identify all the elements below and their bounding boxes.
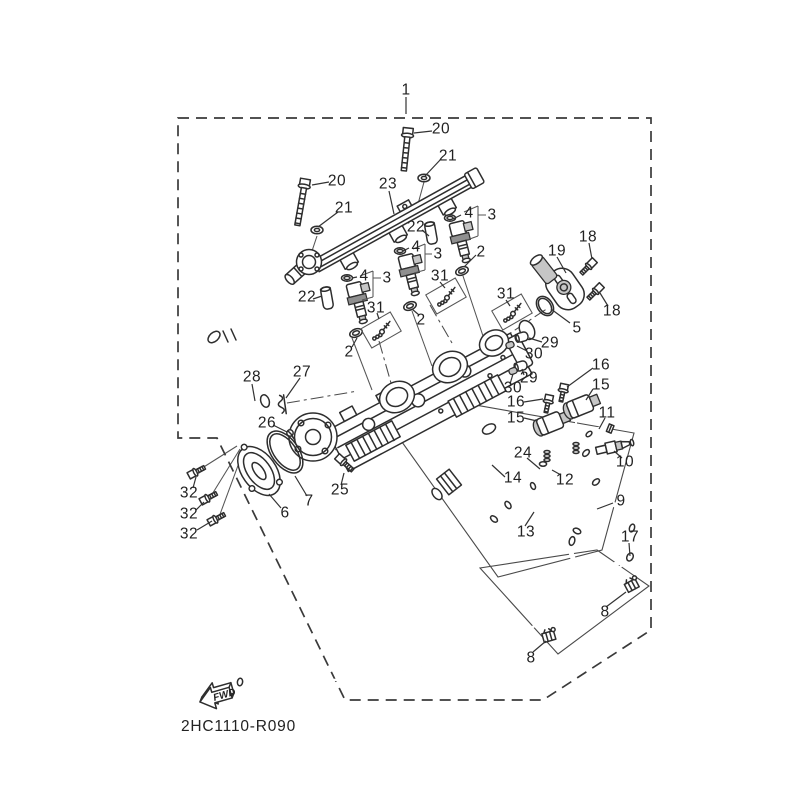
part-label-30[interactable]: 30 (525, 346, 543, 363)
leader-line (269, 494, 281, 508)
leader-line (389, 191, 394, 214)
part-label-21[interactable]: 21 (335, 200, 353, 217)
part-label-14[interactable]: 14 (504, 470, 522, 487)
cap-29a (514, 331, 529, 343)
part-label-18[interactable]: 18 (579, 229, 597, 246)
leader-line (551, 309, 570, 323)
washer-21-right (418, 174, 430, 182)
part-label-31[interactable]: 31 (367, 300, 385, 317)
part-label-22[interactable]: 22 (298, 289, 316, 306)
hose-clamp-27 (277, 395, 286, 415)
part-label-27[interactable]: 27 (293, 364, 311, 381)
part-label-2[interactable]: 2 (476, 244, 485, 261)
exploded-parts-diagram: FWD 2HC1110-R090 12021202321432243219184… (0, 0, 800, 800)
part-label-21[interactable]: 21 (439, 148, 457, 165)
leader-line (597, 503, 613, 509)
part-label-25[interactable]: 25 (331, 482, 349, 499)
part-label-32[interactable]: 32 (180, 485, 198, 502)
part-label-20[interactable]: 20 (328, 173, 346, 190)
drawing-code: 2HC1110-R090 (181, 718, 296, 735)
part-label-22[interactable]: 22 (407, 219, 425, 236)
part-label-3[interactable]: 3 (433, 246, 442, 263)
bolt-16a (541, 394, 555, 414)
part-label-23[interactable]: 23 (379, 176, 397, 193)
part-label-16[interactable]: 16 (592, 357, 610, 374)
part-label-8[interactable]: 8 (526, 650, 535, 667)
part-label-29[interactable]: 29 (520, 370, 538, 387)
part-label-28[interactable]: 28 (243, 369, 261, 386)
parts-diagram-page: FWD 2HC1110-R090 12021202321432243219184… (0, 0, 800, 800)
fwd-arrow: FWD (196, 677, 239, 712)
part-label-16[interactable]: 16 (507, 394, 525, 411)
part-label-26[interactable]: 26 (258, 415, 276, 432)
bolt-20-right (398, 127, 414, 171)
throttle-body (289, 318, 538, 472)
bolt-32b (199, 490, 219, 506)
damper-22-left (320, 286, 334, 309)
hose-14 (430, 422, 497, 502)
part-label-4[interactable]: 4 (411, 239, 420, 256)
leader-line (312, 182, 329, 185)
part-label-29[interactable]: 29 (541, 335, 559, 352)
part-label-12[interactable]: 12 (556, 472, 574, 489)
part-label-4[interactable]: 4 (464, 205, 473, 222)
bolt-18b (586, 282, 605, 301)
part-label-31[interactable]: 31 (431, 268, 449, 285)
bolt-32a (187, 464, 207, 480)
part-label-1[interactable]: 1 (401, 82, 410, 99)
seal-2-right (455, 265, 470, 277)
leader-line (414, 131, 432, 133)
part-label-2[interactable]: 2 (416, 312, 425, 329)
bolt-20-left (291, 178, 311, 226)
part-label-3[interactable]: 3 (382, 270, 391, 287)
bolt-18a (579, 257, 598, 276)
part-label-19[interactable]: 19 (548, 243, 566, 260)
part-label-32[interactable]: 32 (180, 526, 198, 543)
part-label-2[interactable]: 2 (344, 344, 353, 361)
part-number-labels: 1202120232143224321918433122311831252930… (180, 82, 639, 667)
part-label-5[interactable]: 5 (572, 320, 581, 337)
part-label-15[interactable]: 15 (507, 410, 525, 427)
intake-joint-face (289, 413, 337, 461)
part-label-32[interactable]: 32 (180, 506, 198, 523)
leader-line (524, 418, 537, 421)
o-ring-4a (342, 275, 353, 281)
part-label-17[interactable]: 17 (621, 529, 639, 546)
part-label-3[interactable]: 3 (487, 207, 496, 224)
leader-line (524, 399, 543, 402)
part-label-18[interactable]: 18 (603, 303, 621, 320)
pressure-regulator (283, 250, 321, 286)
part-label-4[interactable]: 4 (359, 268, 368, 285)
part-label-24[interactable]: 24 (514, 445, 532, 462)
cover-6 (226, 436, 289, 504)
part-label-6[interactable]: 6 (280, 505, 289, 522)
part-label-20[interactable]: 20 (432, 121, 450, 138)
part-label-9[interactable]: 9 (616, 493, 625, 510)
leader-line (286, 378, 300, 398)
leader-line (252, 384, 255, 401)
part-label-31[interactable]: 31 (497, 286, 515, 303)
part-label-10[interactable]: 10 (616, 454, 634, 471)
fuel-injector-c (447, 219, 480, 265)
part-label-13[interactable]: 13 (517, 524, 535, 541)
fuel-injector-b (396, 252, 429, 298)
fuel-pipe-17 (237, 536, 635, 686)
part-label-8[interactable]: 8 (600, 604, 609, 621)
seal-2-mid (403, 300, 418, 312)
part-label-15[interactable]: 15 (592, 377, 610, 394)
bolt-32c (207, 511, 227, 527)
hose-clamp-8b (541, 627, 558, 642)
part-label-11[interactable]: 11 (598, 405, 615, 422)
screw-set-31-left (361, 312, 401, 348)
leader-line (567, 368, 593, 387)
part-label-7[interactable]: 7 (304, 493, 313, 510)
hose-clamp-8a (623, 575, 641, 592)
hose-11 (585, 424, 614, 438)
tps-sensor-19 (529, 253, 590, 315)
washer-21-left (311, 226, 323, 234)
